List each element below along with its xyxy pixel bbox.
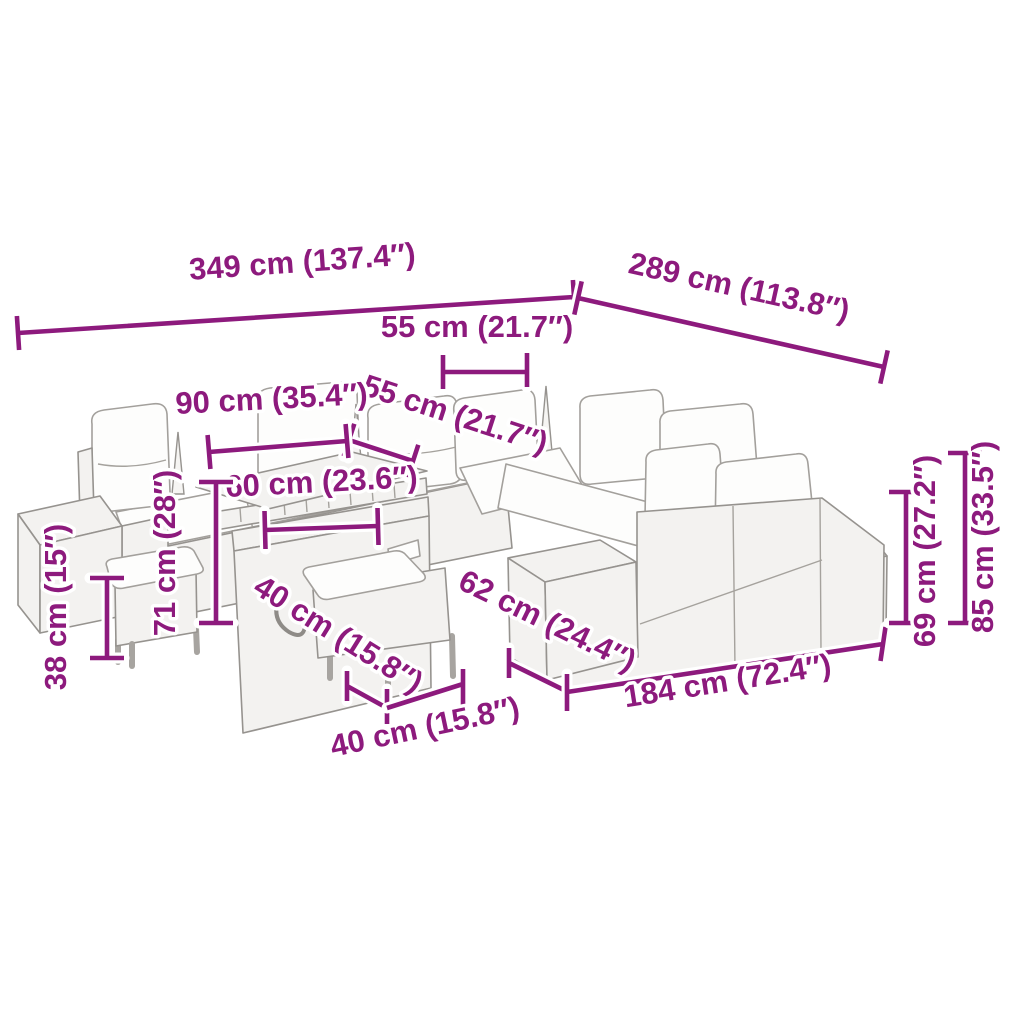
dim-total-height: 85 cm (33.5″) (948, 441, 1000, 633)
dim-label-overall-width: 349 cm (137.4″) (188, 236, 417, 287)
diagram-canvas: 349 cm (137.4″) 289 cm (113.8″) 55 cm (2… (0, 0, 1024, 1024)
dim-seat-width: 55 cm (21.7″) (381, 309, 573, 389)
dim-label-total-height: 85 cm (33.5″) (965, 441, 1000, 633)
dimension-diagram: 349 cm (137.4″) 289 cm (113.8″) 55 cm (2… (0, 0, 1024, 1024)
dim-backrest-height: 69 cm (27.2″) (889, 455, 942, 647)
dim-label-backrest-height: 69 cm (27.2″) (907, 455, 942, 647)
dim-label-seat-width: 55 cm (21.7″) (381, 309, 573, 344)
dim-overall-depth: 289 cm (113.8″) (574, 245, 887, 383)
dim-label-stool-height: 38 cm (15″) (38, 524, 73, 691)
dim-label-table-height: 71 cm (28″) (147, 470, 182, 637)
